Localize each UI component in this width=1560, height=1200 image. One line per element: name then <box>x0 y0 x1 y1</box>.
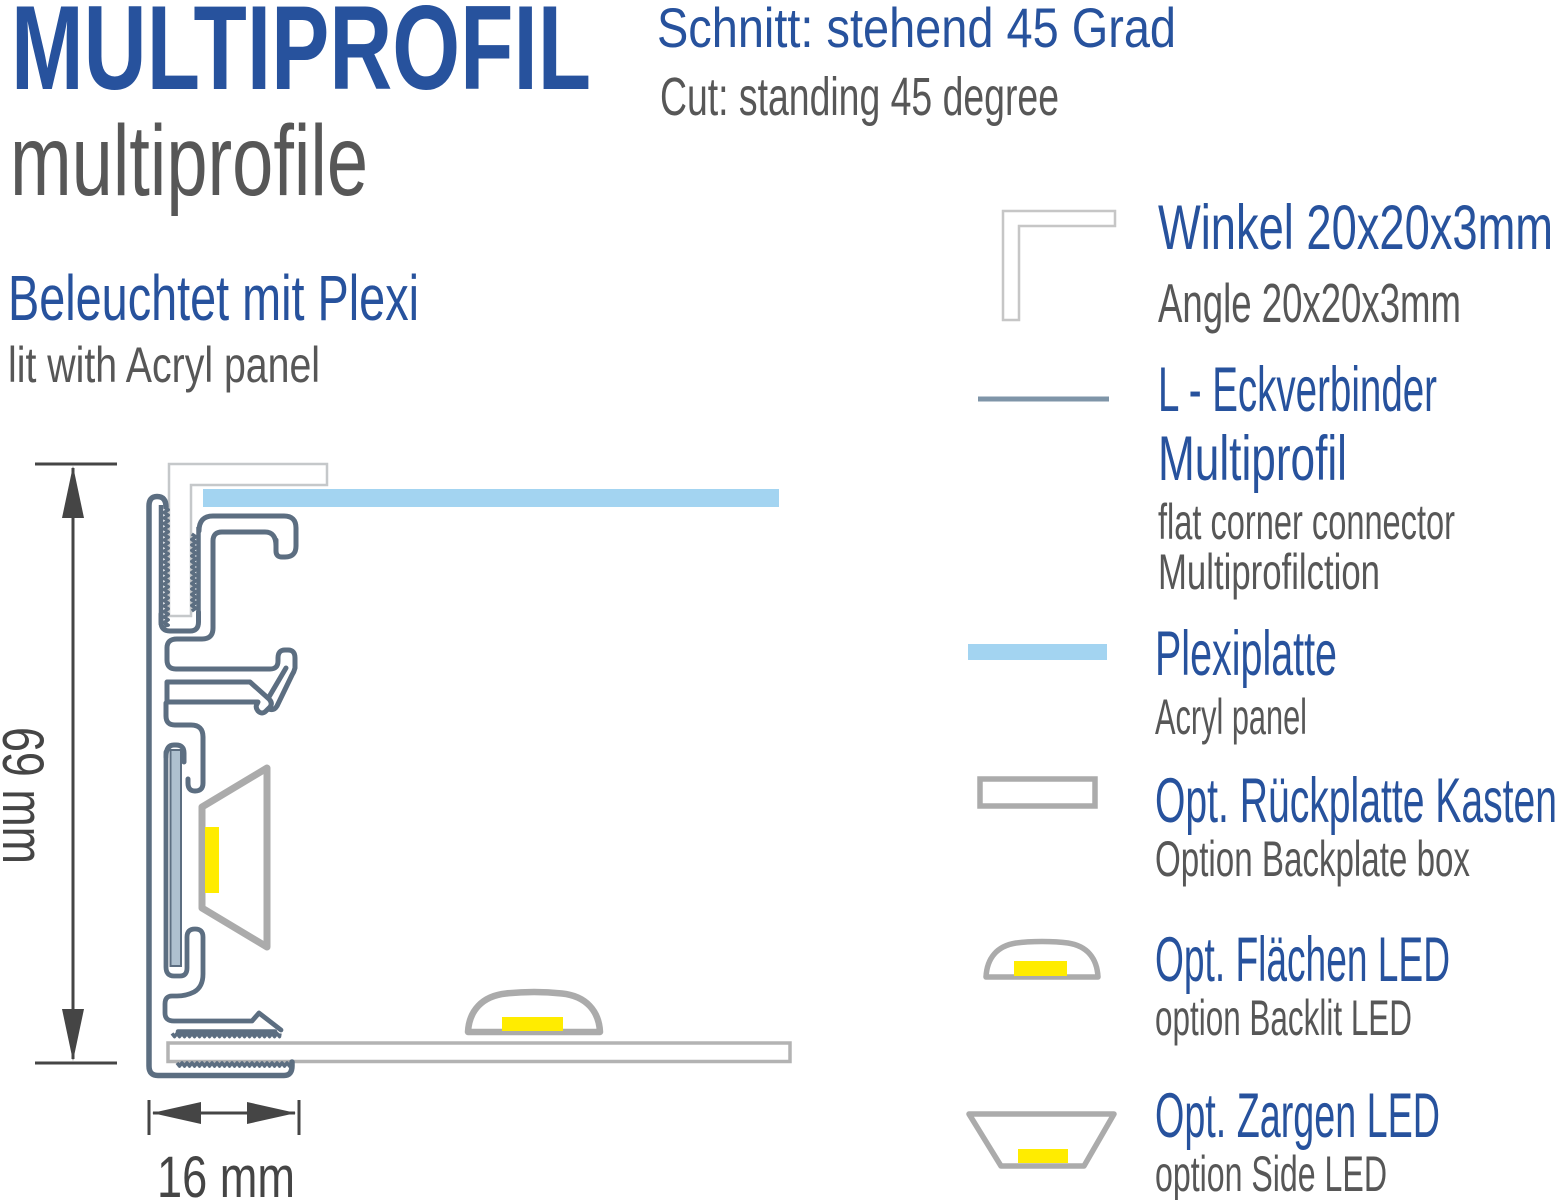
svg-text:Opt. Rückplatte Kasten: Opt. Rückplatte Kasten <box>1155 766 1557 836</box>
svg-text:Angle 20x20x3mm: Angle 20x20x3mm <box>1158 272 1461 334</box>
svg-text:Winkel 20x20x3mm: Winkel 20x20x3mm <box>1158 193 1553 263</box>
svg-text:option Backlit LED: option Backlit LED <box>1155 990 1412 1046</box>
svg-text:Opt. Flächen LED: Opt. Flächen LED <box>1155 925 1450 995</box>
svg-text:Multiprofilction: Multiprofilction <box>1158 544 1380 600</box>
svg-text:16 mm: 16 mm <box>157 1145 295 1200</box>
svg-text:L - Eckverbinder: L - Eckverbinder <box>1158 355 1437 425</box>
svg-text:Acryl panel: Acryl panel <box>1155 689 1307 745</box>
svg-text:Plexiplatte: Plexiplatte <box>1155 619 1337 689</box>
svg-text:option Side LED: option Side LED <box>1155 1146 1387 1200</box>
svg-text:Schnitt: stehend 45 Grad: Schnitt: stehend 45 Grad <box>657 0 1176 59</box>
svg-text:lit with Acryl panel: lit with Acryl panel <box>8 337 320 393</box>
svg-text:Beleuchtet mit Plexi: Beleuchtet mit Plexi <box>8 262 419 334</box>
svg-text:MULTIPROFIL: MULTIPROFIL <box>11 0 591 115</box>
svg-text:Cut: standing 45 degree: Cut: standing 45 degree <box>660 67 1059 127</box>
svg-text:Option Backplate box: Option Backplate box <box>1155 831 1470 887</box>
svg-text:69 mm: 69 mm <box>0 727 55 864</box>
svg-text:flat corner connector: flat corner connector <box>1158 494 1455 550</box>
svg-text:multiprofile: multiprofile <box>10 105 368 217</box>
svg-text:Multiprofil: Multiprofil <box>1158 424 1347 494</box>
svg-text:Opt. Zargen LED: Opt. Zargen LED <box>1155 1081 1440 1151</box>
